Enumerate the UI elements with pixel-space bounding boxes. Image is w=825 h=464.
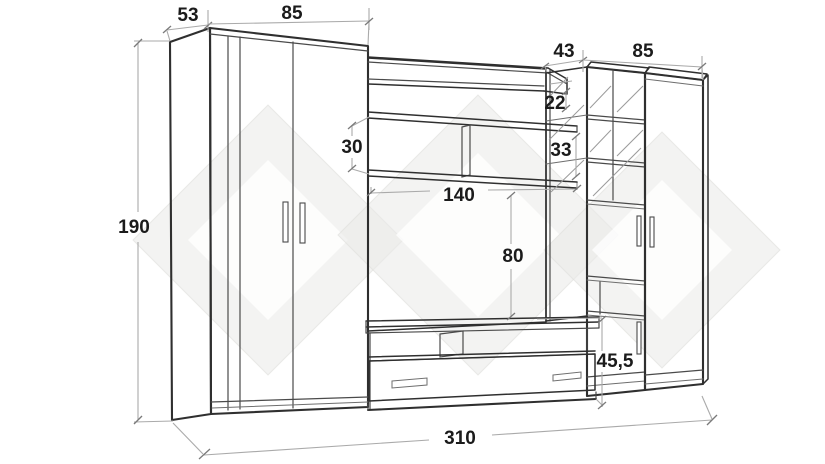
dim-shelf-gap-left: 30	[341, 137, 362, 158]
dim-cabinet-width: 85	[632, 41, 654, 62]
dim-total-height: 190	[118, 217, 150, 238]
dim-wardrobe-width: 85	[281, 3, 303, 24]
dim-top-shelf-height: 22	[544, 93, 565, 114]
dim-tv-stand-height: 45,5	[597, 351, 634, 372]
wardrobe-right-door-handle	[300, 203, 305, 243]
dim-shelf-length: 140	[443, 185, 475, 206]
wardrobe-left-door-handle	[283, 202, 288, 242]
dim-display-unit-depth: 43	[553, 41, 574, 62]
dim-total-width: 310	[444, 428, 476, 449]
wall-unit-drawing: 53 85 43 85 190 310 22 30 33 140 80 45,5	[0, 0, 825, 464]
cabinet-door-handle	[650, 217, 654, 247]
furniture-dimension-diagram: 53 85 43 85 190 310 22 30 33 140 80 45,5	[0, 0, 825, 464]
dim-shelf-gap-right: 33	[550, 140, 571, 161]
dim-tv-niche-height: 80	[502, 246, 523, 267]
dim-wardrobe-depth: 53	[177, 5, 198, 26]
display-unit-door-handle	[637, 216, 641, 246]
display-unit-lower-handle	[637, 322, 641, 354]
